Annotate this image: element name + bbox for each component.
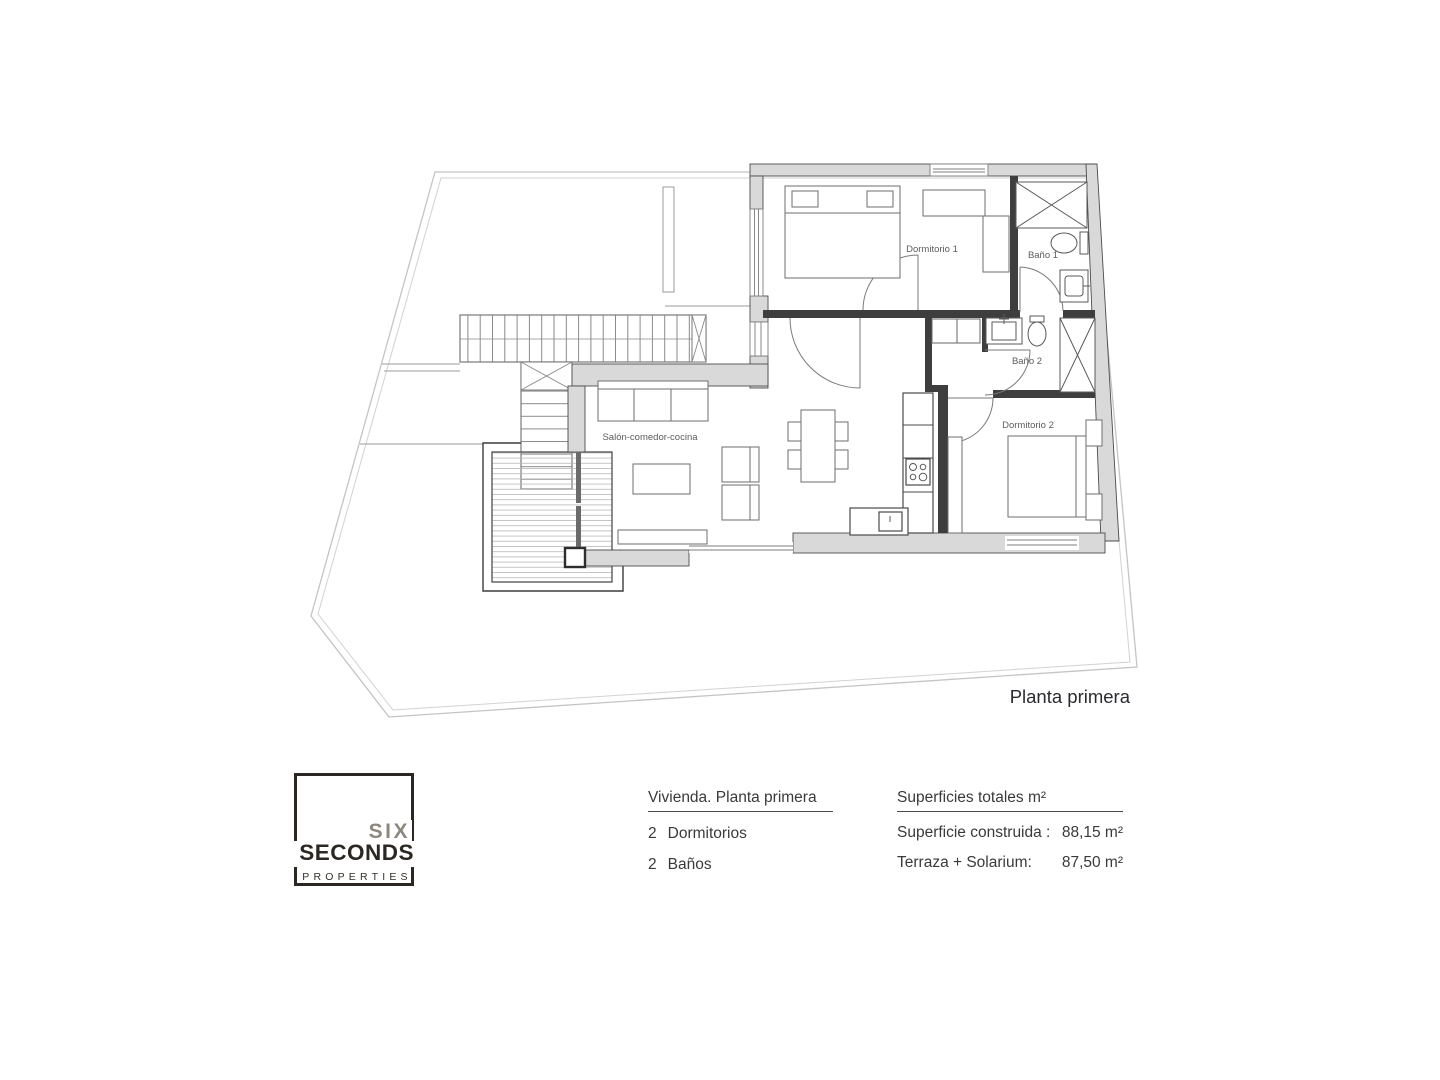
chair xyxy=(835,422,848,441)
coffee-table xyxy=(633,464,690,494)
kitchen xyxy=(850,393,933,535)
detail-row-bedrooms: 2 Dormitorios xyxy=(648,825,833,843)
dining-table xyxy=(801,410,835,482)
entry-door-arc xyxy=(790,318,860,388)
label-dormitorio1: Dormitorio 1 xyxy=(906,244,958,255)
bed2 xyxy=(1008,436,1086,517)
label-dormitorio2: Dormitorio 2 xyxy=(1002,420,1054,431)
bathrooms-count: 2 xyxy=(648,856,657,874)
chair xyxy=(788,422,801,441)
brand-logo: SIX SECONDS PROPERTIES xyxy=(294,773,414,886)
label-salon: Salón-comedor-cocina xyxy=(602,432,698,443)
wardrobe2 xyxy=(948,437,962,533)
kitchen-sink xyxy=(879,512,902,531)
bedrooms-label: Dormitorios xyxy=(668,825,747,843)
terrace-deck xyxy=(483,443,623,591)
armchair xyxy=(722,485,759,520)
armchair xyxy=(722,447,759,482)
area-row-built: Superficie construida : 88,15 m² xyxy=(897,824,1123,842)
built-area-label: Superficie construida : xyxy=(897,824,1050,842)
nightstand xyxy=(1086,494,1102,520)
bath1-door-arc xyxy=(1020,267,1063,312)
areas-title: Superficies totales m² xyxy=(897,789,1123,812)
dwelling-details: Vivienda. Planta primera 2 Dormitorios 2… xyxy=(648,789,833,874)
floor-plan: Salón-comedor-cocina Dormitorio 1 Baño 1… xyxy=(0,0,1440,1080)
detail-row-bathrooms: 2 Baños xyxy=(648,856,833,874)
plan-title: Planta primera xyxy=(1010,686,1131,707)
label-bano1: Baño 1 xyxy=(1028,250,1058,261)
brand-word-properties: PROPERTIES xyxy=(300,872,414,883)
label-bano2: Baño 2 xyxy=(1012,356,1042,367)
wardrobe1 xyxy=(923,190,985,216)
chair xyxy=(788,450,801,469)
stove xyxy=(906,459,930,485)
terrace-area-value: 87,50 m² xyxy=(1062,854,1123,872)
hall-closet xyxy=(932,319,980,343)
terrace-area-label: Terraza + Solarium: xyxy=(897,854,1032,872)
nightstand xyxy=(1086,420,1102,446)
pergola-stairs xyxy=(460,315,706,362)
bedroom2-door-arc xyxy=(948,398,993,443)
bedrooms-count: 2 xyxy=(648,825,657,843)
brand-word-seconds: SECONDS xyxy=(294,841,417,867)
toilet2 xyxy=(1028,322,1046,346)
total-areas: Superficies totales m² Superficie constr… xyxy=(897,789,1123,872)
sideboard xyxy=(618,530,707,544)
sofa xyxy=(598,381,708,421)
details-title: Vivienda. Planta primera xyxy=(648,789,833,812)
page: Salón-comedor-cocina Dormitorio 1 Baño 1… xyxy=(0,0,1440,1080)
bathrooms-label: Baños xyxy=(668,856,712,874)
built-area-value: 88,15 m² xyxy=(1062,824,1123,842)
area-row-terrace: Terraza + Solarium: 87,50 m² xyxy=(897,854,1123,872)
chair xyxy=(835,450,848,469)
